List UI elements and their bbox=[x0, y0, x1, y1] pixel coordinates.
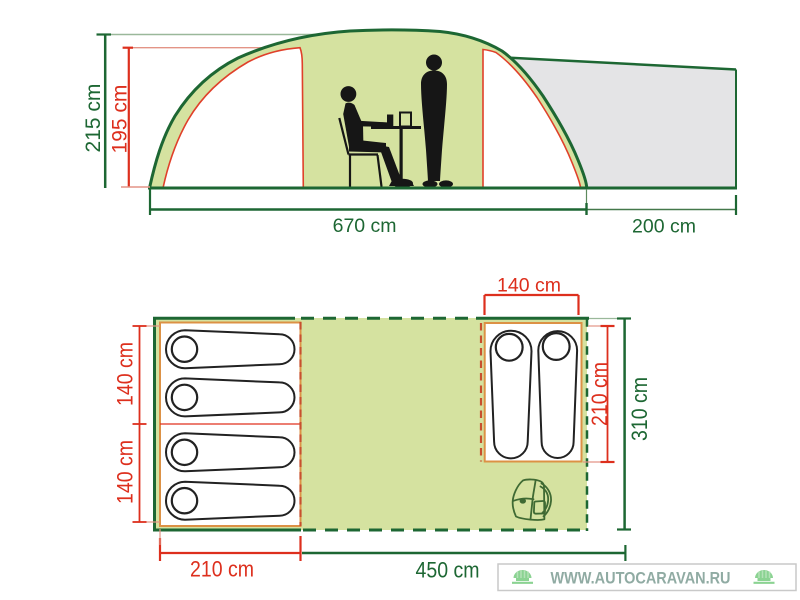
svg-text:WWW.AUTOCARAVAN.RU: WWW.AUTOCARAVAN.RU bbox=[551, 569, 731, 588]
svg-text:140 cm: 140 cm bbox=[497, 275, 561, 297]
svg-text:140 cm: 140 cm bbox=[113, 440, 138, 504]
svg-text:195 cm: 195 cm bbox=[109, 85, 132, 154]
svg-text:310 cm: 310 cm bbox=[627, 377, 652, 441]
svg-text:670 cm: 670 cm bbox=[333, 215, 397, 237]
svg-text:200 cm: 200 cm bbox=[632, 216, 696, 238]
svg-text:210 cm: 210 cm bbox=[587, 362, 612, 426]
svg-text:215 cm: 215 cm bbox=[82, 84, 105, 153]
svg-text:210 cm: 210 cm bbox=[190, 557, 254, 582]
svg-text:140 cm: 140 cm bbox=[113, 342, 138, 406]
svg-text:450 cm: 450 cm bbox=[416, 558, 480, 583]
